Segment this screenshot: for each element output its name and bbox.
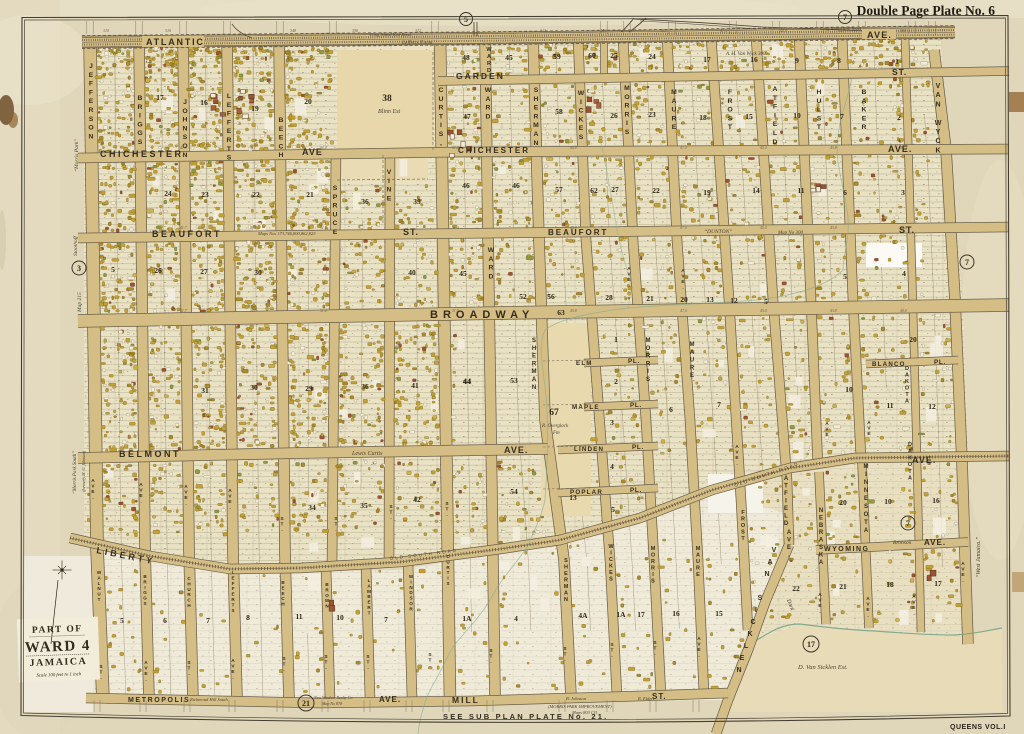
svg-text:20: 20 — [680, 295, 688, 304]
svg-text:5: 5 — [120, 616, 124, 625]
svg-text:29: 29 — [305, 384, 313, 393]
svg-text:34: 34 — [308, 503, 316, 512]
svg-text:5: 5 — [611, 505, 615, 514]
svg-text:20: 20 — [909, 335, 917, 344]
svg-text:PL.: PL. — [934, 359, 946, 366]
svg-text:Richmond Hill South: Richmond Hill South — [189, 697, 228, 702]
svg-text:26: 26 — [154, 266, 162, 275]
svg-text:10: 10 — [336, 613, 344, 622]
svg-text:31.4: 31.4 — [320, 146, 327, 150]
svg-text:(formerly M. G. Johnson): (formerly M. G. Johnson) — [81, 450, 86, 492]
svg-text:11: 11 — [295, 612, 302, 621]
svg-text:6: 6 — [843, 188, 847, 197]
svg-text:SHERMAN: SHERMAN — [533, 87, 539, 147]
svg-text:1: 1 — [614, 335, 618, 344]
svg-text:27: 27 — [200, 267, 208, 276]
svg-text:PL.: PL. — [630, 487, 642, 494]
svg-text:A. H. Van Wyck 300: A. H. Van Wyck 300 — [725, 52, 766, 57]
svg-text:ELM: ELM — [576, 360, 593, 367]
svg-text:3: 3 — [610, 418, 614, 427]
svg-text:11: 11 — [886, 401, 893, 410]
svg-text:23: 23 — [201, 190, 209, 199]
svg-text:1: 1 — [895, 57, 899, 66]
svg-text:16: 16 — [932, 496, 940, 505]
svg-text:24: 24 — [164, 189, 172, 198]
svg-text:5: 5 — [111, 265, 115, 274]
svg-text:300: 300 — [900, 28, 906, 33]
svg-text:10: 10 — [845, 385, 853, 394]
svg-text:“Morris Park South”: “Morris Park South” — [72, 451, 78, 494]
svg-text:31.4: 31.4 — [320, 226, 327, 230]
svg-text:39: 39 — [413, 197, 421, 206]
svg-text:18: 18 — [699, 113, 707, 122]
svg-text:GARDEN: GARDEN — [456, 71, 505, 81]
svg-text:27: 27 — [611, 185, 619, 194]
svg-text:46.7: 46.7 — [838, 28, 846, 33]
svg-text:R. Eldert: R. Eldert — [637, 696, 655, 701]
svg-text:Bronson: Bronson — [893, 540, 912, 546]
svg-text:V: V — [772, 547, 777, 554]
svg-text:44: 44 — [463, 376, 472, 386]
svg-text:Maps 803 CO: Maps 803 CO — [571, 710, 598, 715]
svg-text:17: 17 — [934, 579, 942, 588]
svg-text:17: 17 — [156, 93, 164, 102]
svg-text:31.4: 31.4 — [320, 309, 327, 313]
svg-text:47.0: 47.0 — [680, 309, 687, 313]
svg-text:41.7: 41.7 — [180, 226, 188, 230]
svg-text:AVE.: AVE. — [379, 695, 401, 704]
svg-text:4: 4 — [902, 269, 906, 278]
svg-text:10: 10 — [884, 497, 892, 506]
svg-text:Lewis Curtis: Lewis Curtis — [351, 451, 383, 457]
svg-text:7: 7 — [965, 258, 969, 267]
svg-text:12: 12 — [730, 296, 738, 305]
svg-text:31: 31 — [201, 386, 209, 395]
svg-text:38: 38 — [382, 94, 392, 104]
svg-text:R. Overglack: R. Overglack — [541, 424, 569, 429]
svg-text:“Morris Park”: “Morris Park” — [73, 139, 80, 172]
svg-text:45.8: 45.8 — [570, 309, 577, 313]
svg-text:44.0: 44.0 — [600, 28, 607, 33]
svg-text:22: 22 — [792, 584, 800, 593]
svg-text:BEAUFORT: BEAUFORT — [548, 228, 608, 237]
svg-text:24: 24 — [648, 52, 656, 61]
svg-text:4: 4 — [514, 614, 518, 623]
svg-text:21: 21 — [302, 699, 310, 708]
svg-text:358: 358 — [352, 28, 358, 33]
svg-text:AVE.: AVE. — [912, 455, 936, 465]
svg-text:58: 58 — [555, 107, 563, 116]
svg-text:63: 63 — [557, 308, 565, 317]
svg-text:4A: 4A — [578, 611, 588, 620]
svg-text:46: 46 — [462, 181, 470, 190]
svg-text:D. Van Sicklen Est.: D. Van Sicklen Est. — [797, 664, 848, 671]
svg-text:QUEENS VOL.I: QUEENS VOL.I — [950, 724, 1006, 731]
svg-text:52: 52 — [519, 292, 527, 301]
svg-text:7: 7 — [206, 616, 210, 625]
svg-text:36: 36 — [361, 197, 369, 206]
svg-text:45.0: 45.0 — [780, 28, 787, 33]
svg-text:L: L — [744, 643, 749, 650]
svg-text:16: 16 — [200, 98, 208, 107]
svg-text:WARD 4: WARD 4 — [25, 638, 92, 656]
svg-text:45: 45 — [459, 269, 467, 278]
svg-text:CHICHESTER: CHICHESTER — [458, 146, 530, 155]
svg-text:MAURE: MAURE — [671, 89, 677, 131]
svg-text:45.8: 45.8 — [570, 226, 577, 230]
svg-text:“West Jamaica.”: “West Jamaica.” — [975, 536, 982, 578]
svg-text:40.0: 40.0 — [900, 146, 907, 150]
svg-text:BLANCO: BLANCO — [872, 361, 906, 368]
svg-text:3: 3 — [901, 188, 905, 197]
svg-text:“DUNTON”: “DUNTON” — [704, 228, 732, 235]
svg-text:31.0: 31.0 — [452, 226, 459, 230]
svg-text:59: 59 — [553, 52, 561, 61]
svg-text:15: 15 — [745, 112, 753, 121]
svg-text:LINDEN: LINDEN — [574, 446, 604, 453]
svg-text:6: 6 — [163, 616, 167, 625]
svg-text:METROPOLIS: METROPOLIS — [128, 697, 190, 704]
svg-text:B. Johnson: B. Johnson — [566, 696, 587, 701]
svg-text:21: 21 — [839, 582, 847, 591]
svg-text:43.8: 43.8 — [830, 146, 837, 150]
svg-text:57: 57 — [555, 185, 563, 194]
svg-text:SHERMAN: SHERMAN — [564, 558, 569, 603]
svg-text:62: 62 — [590, 186, 598, 195]
svg-text:BAKER: BAKER — [862, 89, 867, 131]
svg-text:7: 7 — [384, 615, 388, 624]
svg-text:16: 16 — [672, 609, 680, 618]
svg-text:23: 23 — [648, 110, 656, 119]
svg-text:BELMONT: BELMONT — [119, 449, 181, 459]
svg-text:67: 67 — [549, 408, 559, 418]
svg-text:8: 8 — [837, 56, 841, 65]
svg-text:A: A — [767, 559, 772, 566]
svg-text:MILL: MILL — [452, 695, 480, 705]
svg-text:5: 5 — [764, 297, 768, 306]
svg-text:Fm: Fm — [552, 431, 560, 436]
svg-text:5: 5 — [843, 272, 847, 281]
svg-text:7: 7 — [906, 519, 910, 528]
svg-text:312: 312 — [540, 28, 546, 33]
svg-text:13: 13 — [569, 493, 577, 502]
svg-text:BEAUFORT: BEAUFORT — [152, 229, 222, 239]
svg-text:45.0: 45.0 — [760, 146, 767, 150]
svg-text:AVE.: AVE. — [924, 538, 946, 547]
svg-text:VINE: VINE — [387, 169, 392, 202]
svg-text:12: 12 — [928, 402, 936, 411]
svg-text:30: 30 — [250, 383, 258, 392]
svg-text:45.0: 45.0 — [760, 226, 767, 230]
svg-text:S: S — [758, 595, 763, 602]
svg-text:47: 47 — [463, 112, 471, 121]
svg-text:54: 54 — [510, 487, 518, 496]
svg-text:35: 35 — [360, 501, 368, 510]
svg-text:40: 40 — [408, 268, 416, 277]
svg-text:PART OF: PART OF — [32, 624, 83, 636]
svg-text:MAPLE: MAPLE — [572, 404, 600, 411]
svg-text:AVE.: AVE. — [867, 30, 892, 40]
svg-text:30: 30 — [254, 268, 262, 277]
svg-text:Stoothoff: Stoothoff — [72, 235, 79, 256]
svg-text:36: 36 — [361, 382, 369, 391]
svg-text:ATLANTIC: ATLANTIC — [146, 37, 205, 47]
svg-text:JEFFERSON: JEFFERSON — [88, 63, 93, 140]
svg-text:45.8: 45.8 — [570, 146, 577, 150]
svg-text:60: 60 — [588, 51, 596, 60]
svg-text:17: 17 — [703, 55, 711, 64]
svg-text:56: 56 — [547, 292, 555, 301]
svg-text:Map No 300: Map No 300 — [777, 231, 804, 236]
svg-text:7: 7 — [843, 13, 847, 22]
svg-text:CHICHESTER: CHICHESTER — [100, 149, 184, 159]
svg-text:46.0: 46.0 — [660, 28, 667, 33]
svg-text:31.0: 31.0 — [452, 309, 459, 313]
svg-text:26: 26 — [610, 111, 618, 120]
svg-text:4: 4 — [610, 462, 614, 471]
svg-text:PL.: PL. — [630, 402, 642, 409]
svg-text:1A: 1A — [462, 614, 472, 623]
svg-text:21: 21 — [646, 294, 654, 303]
svg-text:22: 22 — [252, 190, 260, 199]
svg-text:C: C — [750, 619, 755, 626]
svg-text:31.0: 31.0 — [452, 146, 459, 150]
svg-text:13: 13 — [706, 295, 714, 304]
svg-text:47.0: 47.0 — [680, 226, 687, 230]
svg-text:ST.: ST. — [403, 227, 419, 237]
svg-text:47.0: 47.0 — [680, 146, 687, 150]
svg-text:8: 8 — [246, 613, 250, 622]
svg-text:22: 22 — [652, 186, 660, 195]
svg-text:E: E — [740, 655, 745, 662]
svg-text:Map No 878: Map No 878 — [321, 701, 342, 706]
svg-text:43.8: 43.8 — [830, 226, 837, 230]
svg-text:N: N — [764, 571, 769, 578]
svg-text:2: 2 — [614, 377, 618, 386]
svg-text:41: 41 — [411, 381, 419, 390]
svg-text:PL.: PL. — [632, 444, 644, 451]
svg-text:JAMAICA: JAMAICA — [29, 656, 87, 669]
svg-text:I: I — [755, 607, 757, 614]
svg-text:18: 18 — [886, 580, 894, 589]
svg-text:42: 42 — [413, 495, 421, 504]
svg-text:47.5: 47.5 — [720, 28, 727, 33]
svg-text:310: 310 — [103, 28, 109, 33]
svg-text:15: 15 — [715, 609, 723, 618]
svg-text:40.0: 40.0 — [900, 309, 907, 313]
svg-text:14: 14 — [752, 186, 760, 195]
svg-text:312: 312 — [415, 28, 421, 33]
svg-text:53: 53 — [510, 376, 518, 385]
svg-text:310: 310 — [165, 28, 171, 33]
svg-text:40.0: 40.0 — [900, 226, 907, 230]
svg-text:17: 17 — [807, 640, 815, 649]
svg-text:10: 10 — [793, 111, 801, 120]
svg-text:46: 46 — [512, 181, 520, 190]
svg-text:Long Island Rail Road: Long Island Rail Road — [369, 32, 412, 37]
svg-text:3: 3 — [77, 264, 81, 273]
svg-text:17: 17 — [637, 610, 645, 619]
svg-text:41.7: 41.7 — [180, 309, 188, 313]
svg-text:20: 20 — [304, 97, 312, 106]
svg-text:BROADWAY: BROADWAY — [430, 309, 534, 321]
svg-text:348: 348 — [290, 28, 296, 33]
svg-text:9: 9 — [795, 56, 799, 65]
svg-text:Blinn Est: Blinn Est — [378, 109, 400, 115]
svg-text:Lefferts Farm: Lefferts Farm — [401, 39, 432, 46]
svg-text:28: 28 — [605, 293, 613, 302]
svg-text:43.8: 43.8 — [830, 309, 837, 313]
svg-text:Map 215: Map 215 — [77, 292, 83, 313]
svg-text:20: 20 — [839, 498, 847, 507]
svg-text:45.0: 45.0 — [760, 309, 767, 313]
svg-text:(MORRIS PARK IMPROVEMENT): (MORRIS PARK IMPROVEMENT) — [548, 704, 612, 709]
svg-text:25: 25 — [610, 51, 618, 60]
svg-text:1A: 1A — [616, 610, 626, 619]
svg-text:7: 7 — [717, 400, 721, 409]
svg-text:AVE.: AVE. — [504, 445, 528, 455]
svg-text:19: 19 — [703, 188, 711, 197]
svg-text:7: 7 — [840, 112, 844, 121]
svg-text:WYOMING: WYOMING — [824, 546, 870, 553]
svg-text:41.7: 41.7 — [180, 146, 188, 150]
svg-text:6: 6 — [669, 405, 673, 414]
svg-text:19: 19 — [251, 104, 259, 113]
svg-text:48: 48 — [462, 53, 470, 62]
svg-text:11: 11 — [797, 186, 804, 195]
svg-text:45: 45 — [505, 53, 513, 62]
svg-text:New Windsor Realty Co: New Windsor Realty Co — [313, 695, 352, 700]
svg-text:PL.: PL. — [628, 358, 640, 365]
svg-text:BEECH: BEECH — [279, 117, 284, 159]
svg-text:N: N — [736, 667, 741, 674]
svg-text:SHERMAN: SHERMAN — [532, 338, 537, 391]
svg-text:2: 2 — [897, 113, 901, 122]
svg-text:K: K — [747, 631, 752, 638]
svg-text:ST.: ST. — [892, 67, 907, 77]
svg-text:21: 21 — [306, 190, 314, 199]
